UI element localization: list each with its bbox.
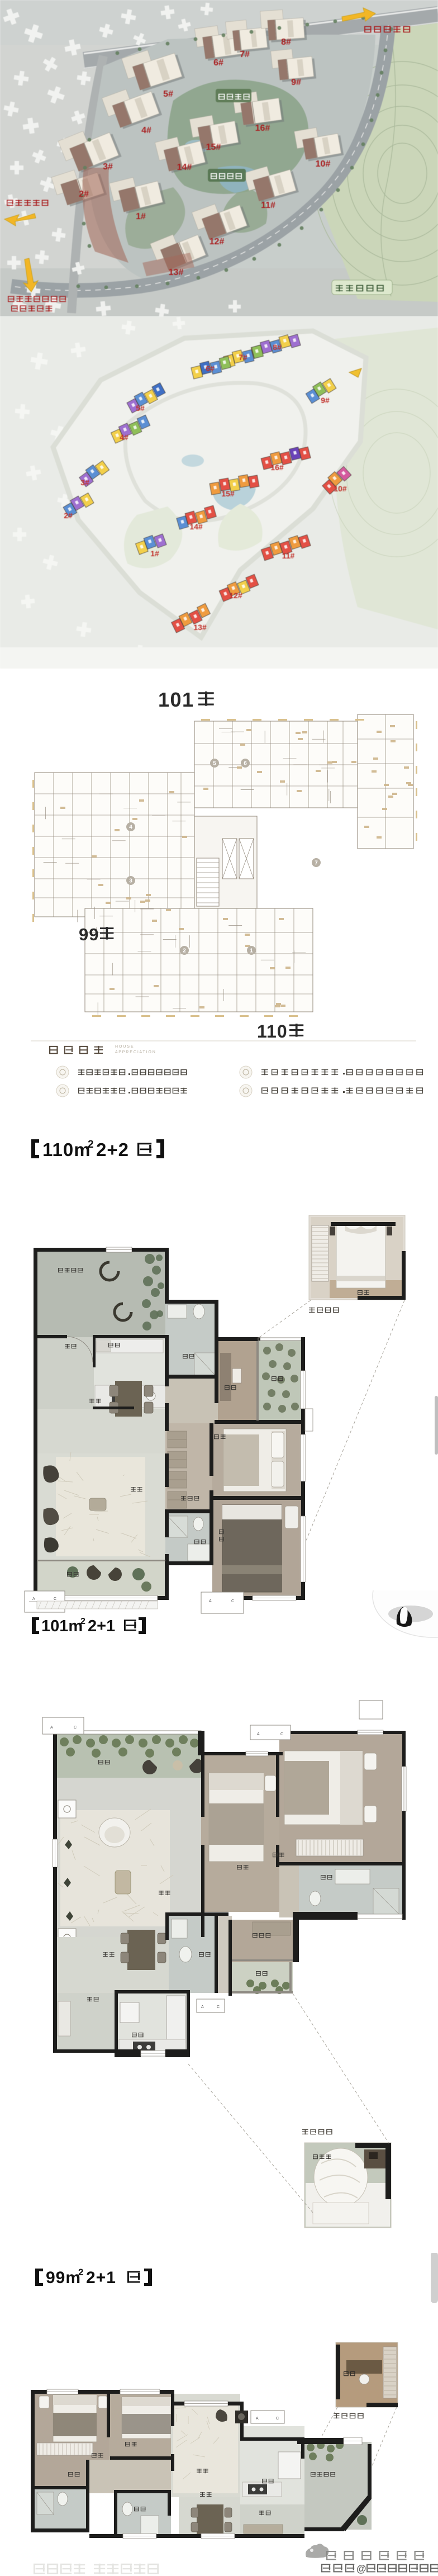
svg-text:A: A bbox=[256, 2417, 259, 2421]
svg-text:4#: 4# bbox=[141, 126, 151, 135]
svg-text:11#: 11# bbox=[282, 551, 295, 560]
svg-text:2: 2 bbox=[80, 1617, 85, 1626]
svg-text:10#: 10# bbox=[316, 159, 331, 169]
svg-text:110m: 110m bbox=[42, 1139, 91, 1160]
svg-text:8#: 8# bbox=[273, 343, 282, 352]
svg-text:2: 2 bbox=[183, 948, 186, 954]
svg-text:C: C bbox=[280, 1732, 283, 1736]
svg-text:7#: 7# bbox=[239, 353, 247, 362]
svg-text:7: 7 bbox=[315, 860, 318, 866]
svg-text:12#: 12# bbox=[229, 591, 242, 600]
svg-text:6: 6 bbox=[244, 761, 247, 767]
svg-text:4#: 4# bbox=[120, 433, 128, 442]
svg-text:2#: 2# bbox=[64, 511, 73, 520]
svg-text:15#: 15# bbox=[221, 489, 235, 498]
svg-text:C: C bbox=[217, 2005, 220, 2009]
svg-text:15#: 15# bbox=[206, 143, 221, 152]
svg-text:11#: 11# bbox=[261, 201, 275, 210]
svg-text:C: C bbox=[231, 1599, 234, 1603]
svg-text:110: 110 bbox=[257, 1021, 288, 1041]
svg-text:9#: 9# bbox=[291, 78, 301, 87]
svg-text:A: A bbox=[209, 1599, 212, 1603]
svg-text:14#: 14# bbox=[177, 163, 192, 172]
svg-text:4: 4 bbox=[129, 825, 132, 831]
svg-text:C: C bbox=[74, 1726, 77, 1730]
svg-text:3#: 3# bbox=[80, 478, 89, 487]
svg-text:16#: 16# bbox=[255, 124, 270, 133]
svg-text:7#: 7# bbox=[240, 50, 250, 59]
svg-text:A P P R E C I A T I O N: A P P R E C I A T I O N bbox=[115, 1050, 155, 1054]
svg-text:8#: 8# bbox=[281, 37, 291, 47]
svg-text:1#: 1# bbox=[150, 549, 159, 558]
svg-text:101m: 101m bbox=[41, 1617, 83, 1635]
svg-text:A: A bbox=[50, 1726, 53, 1730]
svg-text:9#: 9# bbox=[321, 396, 330, 405]
svg-text:2+1: 2+1 bbox=[86, 2269, 116, 2287]
svg-text:C: C bbox=[276, 2417, 279, 2421]
svg-text:10#: 10# bbox=[334, 484, 347, 493]
svg-text:@: @ bbox=[356, 2563, 366, 2574]
svg-text:13#: 13# bbox=[169, 268, 184, 277]
svg-text:5: 5 bbox=[213, 761, 216, 767]
svg-text:16#: 16# bbox=[270, 463, 284, 472]
svg-text:H O U S E: H O U S E bbox=[115, 1045, 134, 1049]
svg-text:6#: 6# bbox=[206, 364, 215, 373]
svg-text:2+2: 2+2 bbox=[96, 1139, 129, 1160]
svg-text:2+1: 2+1 bbox=[88, 1617, 115, 1635]
svg-text:A: A bbox=[32, 1597, 35, 1601]
svg-text:5#: 5# bbox=[163, 89, 173, 99]
svg-text:5#: 5# bbox=[136, 404, 145, 413]
svg-text:2#: 2# bbox=[79, 190, 89, 199]
svg-text:12#: 12# bbox=[210, 237, 225, 247]
svg-text:1: 1 bbox=[250, 948, 253, 954]
svg-text:14#: 14# bbox=[189, 522, 203, 531]
svg-text:A: A bbox=[201, 2005, 204, 2009]
svg-text:A: A bbox=[257, 1732, 260, 1736]
svg-text:6#: 6# bbox=[213, 58, 223, 68]
svg-text:101: 101 bbox=[158, 688, 194, 711]
svg-text:3: 3 bbox=[129, 878, 132, 884]
svg-text:C: C bbox=[54, 1597, 56, 1601]
svg-text:99m: 99m bbox=[46, 2269, 81, 2287]
svg-text:13#: 13# bbox=[193, 623, 207, 632]
svg-text:3#: 3# bbox=[103, 162, 113, 172]
svg-text:99: 99 bbox=[79, 925, 99, 944]
svg-text:2: 2 bbox=[88, 1139, 94, 1150]
svg-text:2: 2 bbox=[78, 2267, 83, 2277]
svg-text:1#: 1# bbox=[136, 212, 146, 221]
